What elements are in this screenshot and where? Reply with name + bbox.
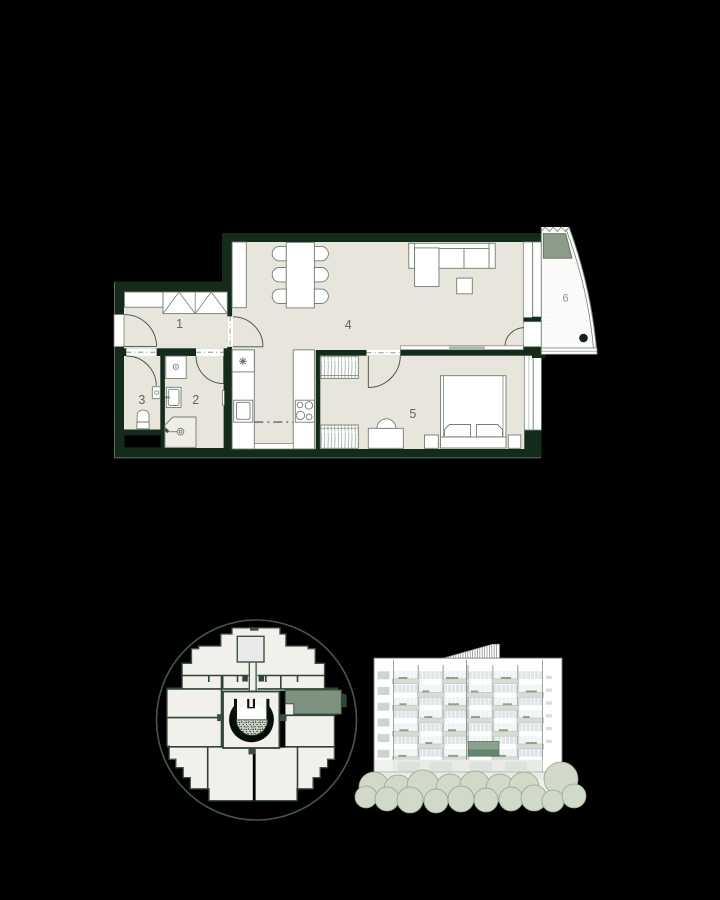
svg-text:6: 6: [563, 293, 569, 305]
svg-text:1: 1: [176, 317, 183, 331]
svg-text:2: 2: [192, 393, 199, 407]
svg-text:5: 5: [409, 407, 416, 421]
svg-text:3: 3: [138, 393, 145, 407]
svg-text:4: 4: [345, 318, 352, 332]
